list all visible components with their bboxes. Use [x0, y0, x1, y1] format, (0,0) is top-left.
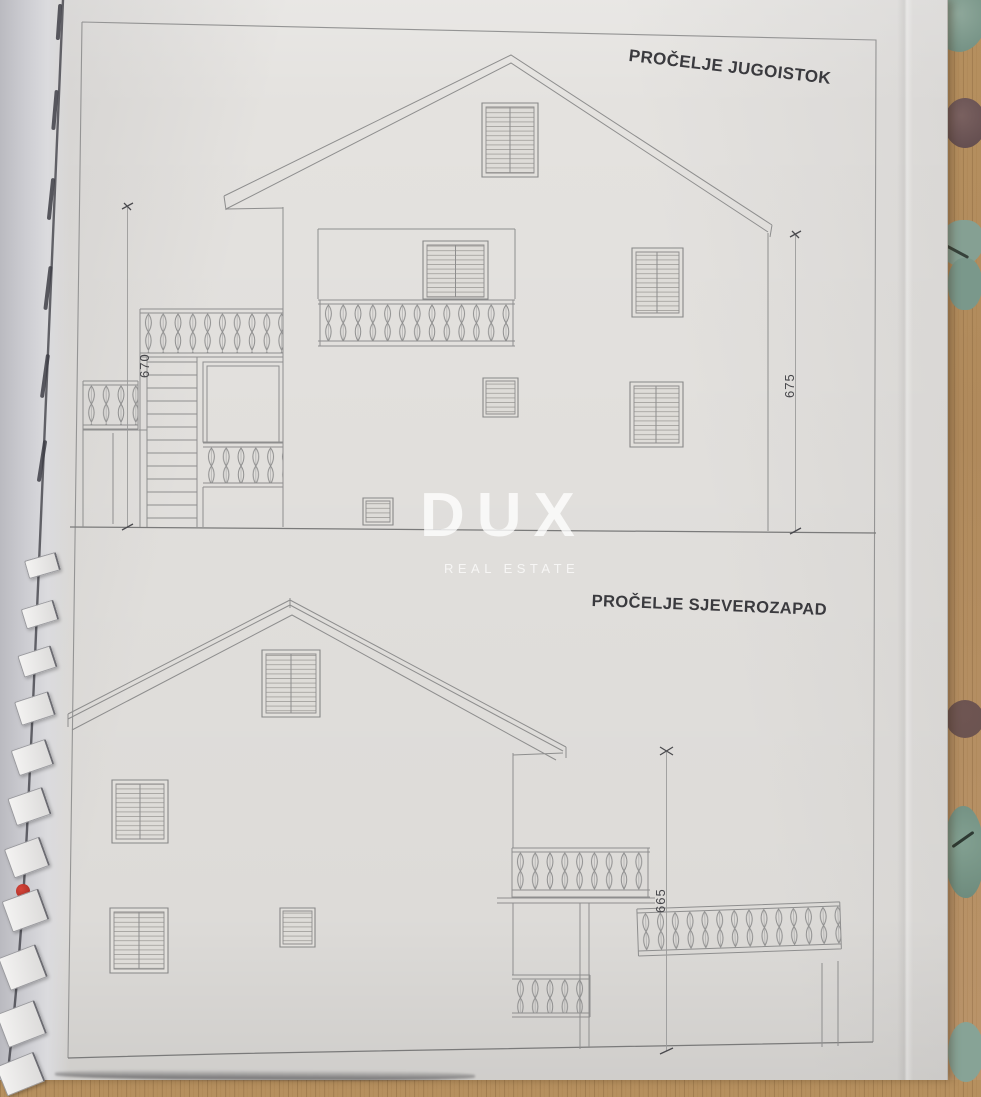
- annex-door-panel-inner: [207, 366, 279, 442]
- upper-right-window: [632, 248, 683, 317]
- dimension-label: 665: [653, 888, 668, 913]
- lower-left-balustrade: [512, 975, 590, 1017]
- upper-left-window: [112, 780, 168, 843]
- annex-door-panel: [203, 362, 283, 442]
- dimension-label: 670: [137, 353, 152, 378]
- attic-window: [482, 103, 538, 177]
- balusters: [513, 979, 590, 1013]
- window-shutter: [283, 911, 312, 944]
- vent-grille: [366, 501, 390, 522]
- small-window: [483, 378, 518, 417]
- lower-right-window: [630, 382, 683, 447]
- elevation-southeast: 670 675: [70, 55, 876, 534]
- annex-lower-balustrade: [203, 443, 283, 487]
- balusters: [513, 852, 648, 890]
- balusters: [84, 385, 138, 425]
- balcony-door: [423, 241, 488, 299]
- watermark-brand: DUX: [420, 480, 587, 551]
- watermark-tagline: REAL ESTATE: [444, 561, 579, 576]
- stair-treads: [147, 362, 197, 518]
- annex-structure-lines: [83, 357, 203, 527]
- balcony-posts: [513, 903, 589, 1049]
- balcony-balustrade: [318, 300, 515, 346]
- balusters: [204, 447, 283, 483]
- right-balcony-posts: [822, 961, 838, 1047]
- dimension-label: 675: [782, 373, 797, 398]
- small-window: [280, 908, 315, 947]
- dimension-675: 675: [782, 231, 801, 534]
- annex-upper-balustrade: [140, 309, 283, 357]
- lower-left-window: [110, 908, 168, 973]
- balcony-slab: [497, 898, 655, 903]
- balusters: [638, 906, 841, 951]
- elevation-northwest: 665: [68, 598, 841, 1054]
- annex-left-balustrade: [83, 381, 138, 429]
- balusters: [321, 304, 512, 341]
- dimension-665: 665: [653, 747, 673, 1054]
- bottom-ground-line: [68, 1042, 873, 1058]
- ground-vent: [363, 498, 393, 525]
- upper-balcony-balustrade: [497, 848, 655, 903]
- window-shutter: [486, 381, 515, 414]
- attic-window: [262, 650, 320, 717]
- stair-annex: [83, 309, 283, 527]
- balusters: [141, 313, 283, 353]
